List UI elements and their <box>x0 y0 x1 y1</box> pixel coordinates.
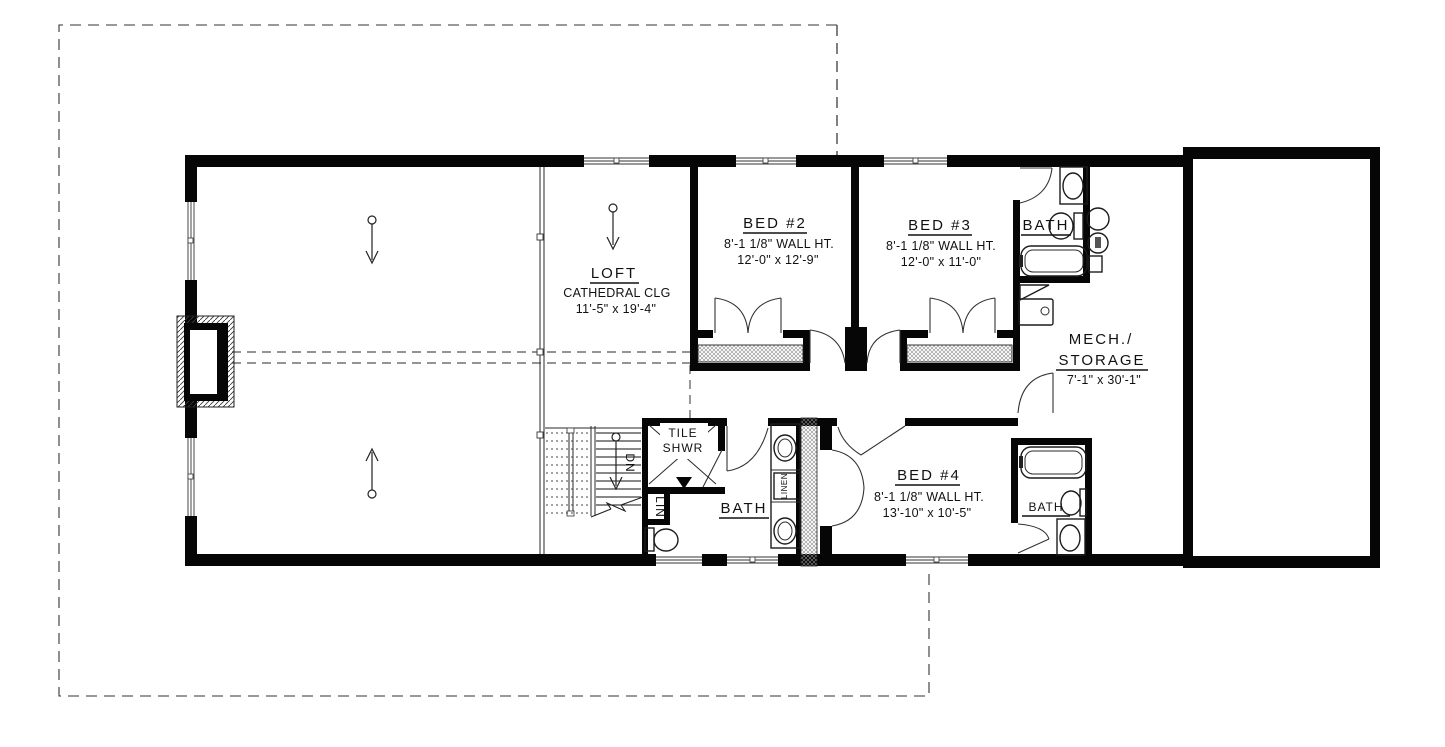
room-label-shower: TILE SHWR <box>663 426 704 455</box>
bed4-dims: 13'-10" x 10'-5" <box>883 506 972 520</box>
room-label-loft: LOFT CATHEDRAL CLG 11'-5" x 19'-4" <box>563 265 670 316</box>
rail-post <box>537 432 543 438</box>
bed4-name: BED #4 <box>897 467 961 484</box>
window-mullion <box>763 158 768 163</box>
chase <box>1089 256 1102 272</box>
appliance <box>1020 285 1049 300</box>
bath-top-name: BATH <box>1023 217 1070 234</box>
ridge-lines <box>232 352 690 418</box>
window <box>584 155 649 167</box>
tub-faucet <box>1019 255 1023 267</box>
wall-segment <box>1013 200 1020 371</box>
window <box>736 155 796 167</box>
loft-ceiling: CATHEDRAL CLG <box>563 286 670 300</box>
bathtub-inner <box>1025 451 1082 474</box>
sink <box>1063 173 1083 199</box>
room-label-bath-br: BATH <box>1022 500 1070 516</box>
room-label-bed4: BED #4 8'-1 1/8" WALL HT. 13'-10" x 10'-… <box>874 467 984 520</box>
water-heater <box>1087 208 1109 230</box>
window <box>656 554 702 566</box>
sink-basin <box>778 439 792 457</box>
appliance-dial <box>1041 307 1049 315</box>
bed2-wall-height: 8'-1 1/8" WALL HT. <box>724 237 834 251</box>
slope-arrows <box>366 204 619 498</box>
bed4-wall-height: 8'-1 1/8" WALL HT. <box>874 490 984 504</box>
double-door-swing <box>715 298 781 333</box>
bed2-name: BED #2 <box>743 215 807 232</box>
rail-post <box>537 234 543 240</box>
bath-mid-name: BATH <box>721 500 768 517</box>
toilet <box>654 529 678 551</box>
loft-name: LOFT <box>591 265 637 282</box>
sink <box>1060 525 1080 551</box>
wall-segment <box>845 327 867 371</box>
loft-railing <box>537 167 544 554</box>
fireplace-firebox <box>190 330 217 394</box>
door-swing <box>1018 524 1049 553</box>
toilet <box>1061 491 1081 515</box>
wall-segment <box>851 167 859 330</box>
loft-dims: 11'-5" x 19'-4" <box>576 302 656 316</box>
wall-segment <box>905 418 1018 426</box>
wall-segment <box>690 167 698 371</box>
window <box>185 202 197 280</box>
wall-segment <box>1183 147 1380 159</box>
wall-segment <box>1183 147 1193 568</box>
window <box>727 554 778 566</box>
down-arrow <box>366 216 378 263</box>
rail-post <box>537 349 543 355</box>
wall-segment <box>1011 438 1092 445</box>
appliance <box>1019 299 1053 325</box>
window <box>906 554 968 566</box>
tub-faucet <box>1019 456 1023 468</box>
wall-segment <box>694 330 713 338</box>
window-mullion <box>188 238 193 243</box>
bed3-dims: 12'-0" x 11'-0" <box>901 255 981 269</box>
window <box>884 155 947 167</box>
double-door-swing <box>832 450 864 526</box>
closet-shelf <box>698 345 803 362</box>
rail-post <box>567 428 574 433</box>
room-label-mech: MECH./ STORAGE 7'-1" x 30'-1" <box>1056 331 1148 387</box>
stair-treads-hidden <box>546 433 589 513</box>
door-swing <box>810 330 845 363</box>
linen-cabinet-label: LINEN <box>780 473 789 499</box>
lin-closet-label: LIN <box>653 496 667 518</box>
wall-segment <box>185 155 1190 167</box>
room-label-bed2: BED #2 8'-1 1/8" WALL HT. 12'-0" x 12'-9… <box>724 215 834 267</box>
bath-br-name: BATH <box>1028 500 1063 514</box>
floor-plan-canvas: LOFT CATHEDRAL CLG 11'-5" x 19'-4" BED #… <box>0 0 1445 747</box>
wall-segment <box>820 526 832 554</box>
wall-segment <box>718 418 725 451</box>
shower-name-2: SHWR <box>663 441 704 455</box>
window-mullion <box>934 557 939 562</box>
wall-segment <box>820 418 832 450</box>
door-swing <box>1020 168 1052 203</box>
door-swing <box>727 426 768 471</box>
plumbing-wall-hatch <box>801 418 817 566</box>
door-swing <box>838 426 905 455</box>
mech-name-2: STORAGE <box>1058 352 1145 369</box>
window-mullion <box>188 474 193 479</box>
stairs-dn-label: DN <box>623 453 637 472</box>
bathtub-inner <box>1025 250 1083 272</box>
break-line <box>591 497 643 517</box>
bed3-wall-height: 8'-1 1/8" WALL HT. <box>886 239 996 253</box>
wall-segment <box>1011 438 1018 523</box>
wall-segment <box>690 363 807 371</box>
fireplace <box>177 316 234 407</box>
window-mullion <box>750 557 755 562</box>
mech-name-1: MECH./ <box>1069 331 1134 348</box>
room-label-bath-mid: BATH <box>719 500 769 518</box>
bed2-dims: 12'-0" x 12'-9" <box>737 253 818 267</box>
room-label-bath-top: BATH <box>1021 217 1071 235</box>
down-arrow <box>607 204 619 249</box>
door-swing <box>867 330 900 363</box>
sink-basin <box>778 522 792 540</box>
window <box>185 438 197 516</box>
floor-plan-page: LOFT CATHEDRAL CLG 11'-5" x 19'-4" BED #… <box>0 0 1445 747</box>
wall-segment <box>1370 147 1380 568</box>
wall-segment <box>642 519 670 525</box>
door-swing <box>1018 373 1053 413</box>
wall-segment <box>1013 276 1090 283</box>
window-mullion <box>614 158 619 163</box>
window-mullion <box>913 158 918 163</box>
up-arrow <box>366 449 378 498</box>
shower-name-1: TILE <box>668 426 697 440</box>
double-door-swing <box>930 298 995 333</box>
toilet-tank <box>1074 213 1083 239</box>
vent <box>1095 237 1101 248</box>
closet-shelf <box>907 345 1012 362</box>
wall-segment <box>900 363 1013 371</box>
room-label-bed3: BED #3 8'-1 1/8" WALL HT. 12'-0" x 11'-0… <box>886 217 996 269</box>
wall-segment <box>1183 556 1380 568</box>
bed3-name: BED #3 <box>908 217 972 234</box>
mech-dims: 7'-1" x 30'-1" <box>1067 373 1141 387</box>
